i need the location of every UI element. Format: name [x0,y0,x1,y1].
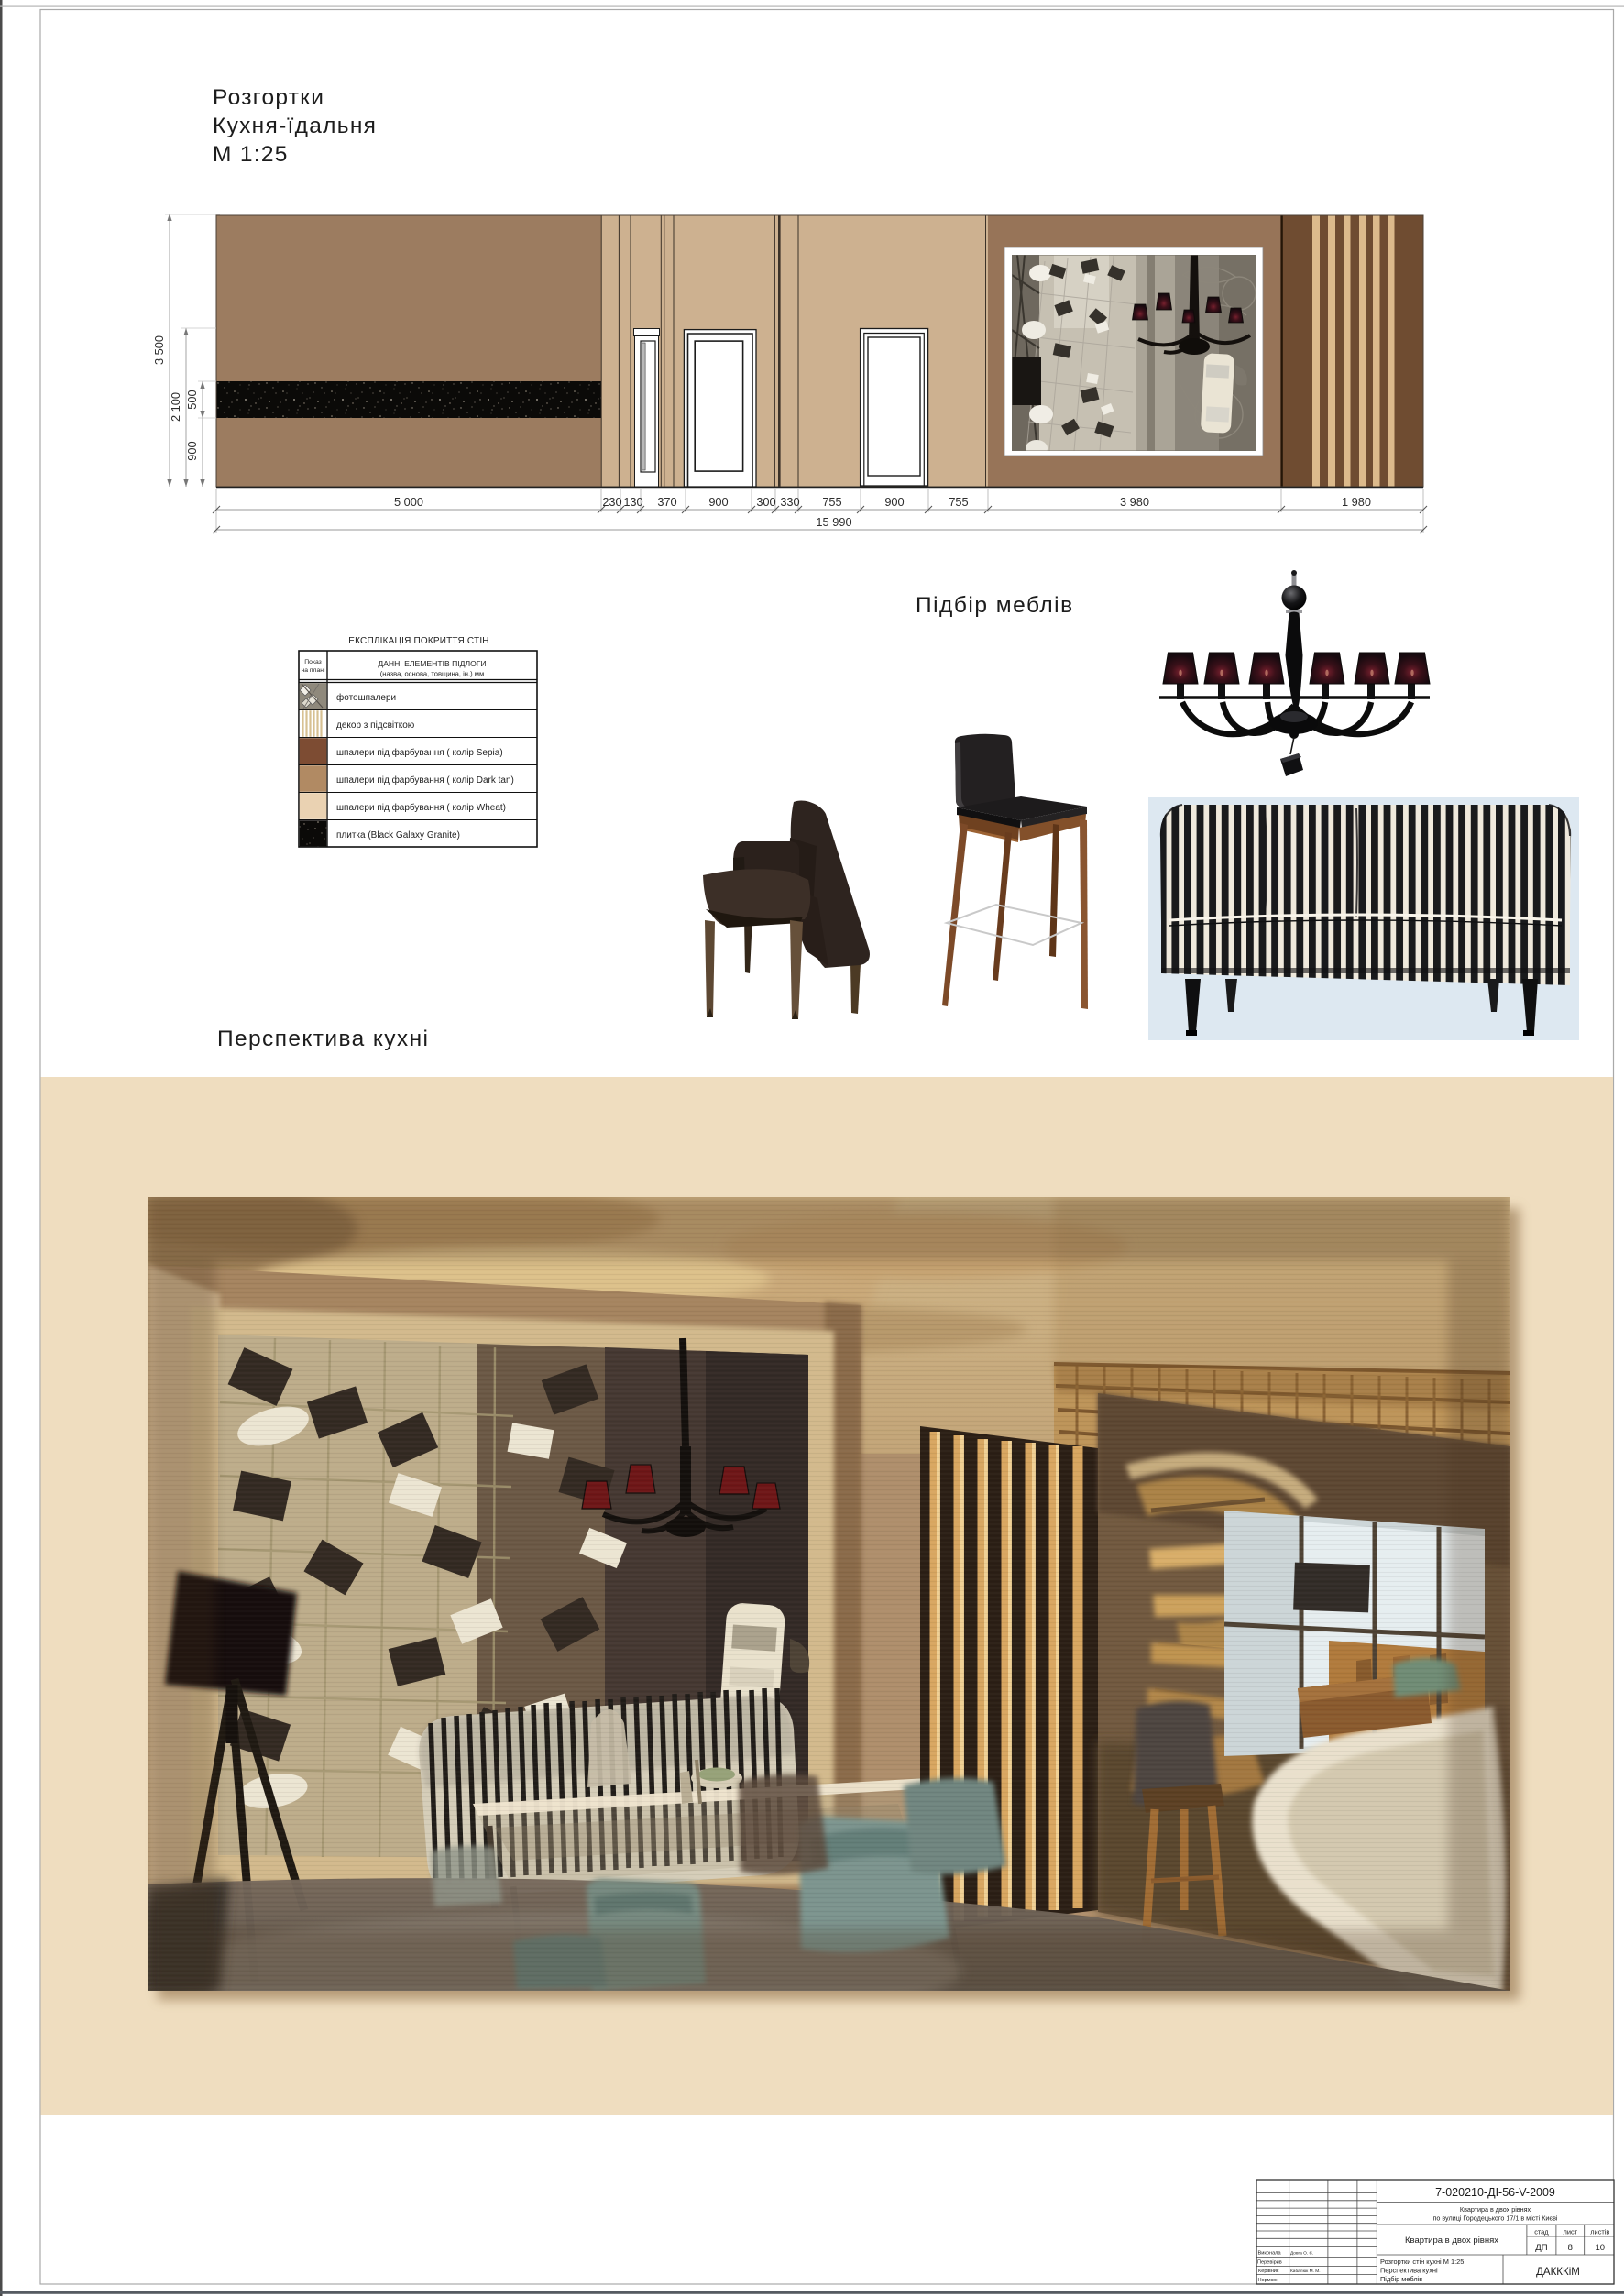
svg-text:8: 8 [1568,2243,1573,2253]
svg-text:7-020210-ДІ-56-V-2009: 7-020210-ДІ-56-V-2009 [1435,2186,1555,2199]
svg-text:Нормкон: Нормкон [1258,2278,1279,2283]
svg-text:755: 755 [949,495,968,509]
svg-text:М 1:25: М 1:25 [213,142,289,167]
svg-text:Підбір меблів: Підбір меблів [916,593,1074,618]
svg-text:Розгортки стін кухні М 1:25: Розгортки стін кухні М 1:25 [1380,2258,1464,2266]
svg-text:фотошпалери: фотошпалери [336,692,396,703]
svg-text:листів: листів [1590,2228,1609,2236]
svg-text:15 990: 15 990 [816,515,851,529]
svg-text:755: 755 [822,495,841,509]
svg-text:130: 130 [623,495,642,509]
svg-text:(назва, основа, товщина, ін.): (назва, основа, товщина, ін.) мм [380,670,484,678]
svg-text:Перспектива кухні: Перспектива кухні [1380,2267,1438,2275]
svg-text:ДАКККіМ: ДАКККіМ [1536,2267,1580,2278]
svg-text:плитка (Black Galaxy Granite): плитка (Black Galaxy Granite) [336,830,460,840]
svg-text:Показ: Показ [304,659,322,665]
svg-text:Кабалюк М. М.: Кабалюк М. М. [1290,2269,1321,2274]
svg-text:Квартира в двох рівнях: Квартира в двох рівнях [1405,2236,1498,2246]
svg-text:Розгортки: Розгортки [213,85,324,110]
svg-text:шпалери під фарбування ( колір: шпалери під фарбування ( колір Wheat) [336,802,506,813]
svg-text:5 000: 5 000 [394,495,423,509]
svg-text:шпалери під фарбування ( колір: шпалери під фарбування ( колір Dark tan) [336,774,514,785]
svg-text:230: 230 [602,495,621,509]
svg-text:ДАННІ ЕЛЕМЕНТІВ ПІДЛОГИ: ДАННІ ЕЛЕМЕНТІВ ПІДЛОГИ [378,659,486,668]
svg-text:900: 900 [884,495,904,509]
svg-text:Перспектива кухні: Перспектива кухні [217,1027,429,1051]
svg-text:лист: лист [1564,2228,1578,2236]
svg-text:Підбір меблів: Підбір меблів [1380,2275,1422,2283]
svg-text:по вулиці Городецького 17/1 в: по вулиці Городецького 17/1 в місті Києв… [1433,2214,1558,2223]
svg-text:370: 370 [657,495,676,509]
svg-text:на плані: на плані [301,666,325,674]
svg-text:Квартира в двох рівнях: Квартира в двох рівнях [1460,2205,1531,2214]
svg-text:Виконала: Виконала [1258,2251,1282,2257]
svg-text:500: 500 [185,390,199,409]
svg-text:3 980: 3 980 [1120,495,1149,509]
svg-text:ДП: ДП [1535,2243,1547,2253]
svg-text:2 100: 2 100 [169,392,182,422]
svg-text:Довга О. Є.: Довга О. Є. [1290,2251,1313,2257]
svg-text:330: 330 [780,495,799,509]
svg-text:декор з підсвіткою: декор з підсвіткою [336,720,415,731]
svg-text:900: 900 [708,495,728,509]
svg-text:900: 900 [185,441,199,460]
svg-text:10: 10 [1596,2243,1606,2253]
svg-text:шпалери під фарбування ( колір: шпалери під фарбування ( колір Sepia) [336,747,503,758]
svg-text:стад: стад [1534,2228,1549,2236]
svg-text:300: 300 [756,495,775,509]
svg-text:Керівник: Керівник [1258,2269,1279,2274]
svg-text:ЕКСПЛІКАЦІЯ ПОКРИТТЯ СТІН: ЕКСПЛІКАЦІЯ ПОКРИТТЯ СТІН [348,636,488,646]
svg-text:1 980: 1 980 [1342,495,1371,509]
svg-text:3 500: 3 500 [152,335,166,365]
svg-text:Кухня-їдальня: Кухня-їдальня [213,114,377,138]
svg-text:Перевірив: Перевірив [1257,2260,1282,2266]
